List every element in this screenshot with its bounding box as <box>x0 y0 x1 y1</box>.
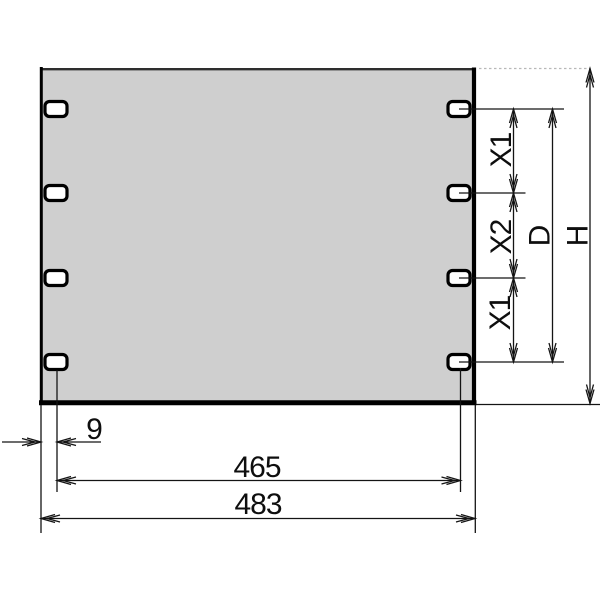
label-d: D <box>524 225 557 246</box>
dimension-hole-span: 465 <box>57 451 461 485</box>
label-overall-width: 483 <box>234 488 281 521</box>
label-x1-bottom: X1 <box>484 295 517 330</box>
mounting-slot-left-2 <box>45 186 67 201</box>
label-edge-offset: 9 <box>86 413 102 446</box>
dimension-overall-width: 483 <box>41 488 475 523</box>
technical-drawing-canvas: X1 X2 X1 D H 9 465 483 <box>0 0 600 600</box>
panel <box>39 67 477 405</box>
mounting-slot-left-1 <box>45 102 67 117</box>
dimension-edge-offset: 9 <box>2 413 102 446</box>
panel-face <box>40 68 476 404</box>
mounting-slot-left-3 <box>45 271 67 286</box>
dimension-d: D <box>524 109 557 362</box>
dimension-h: H <box>562 69 595 404</box>
label-x1-top: X1 <box>485 132 518 167</box>
rack-panel-drawing: X1 X2 X1 D H 9 465 483 <box>0 0 600 600</box>
mounting-slot-left-4 <box>45 355 67 370</box>
dimension-hole-pitch: X1 X2 X1 <box>484 109 518 362</box>
label-h: H <box>562 226 595 247</box>
label-x2: X2 <box>485 219 518 254</box>
label-hole-span: 465 <box>233 451 280 484</box>
